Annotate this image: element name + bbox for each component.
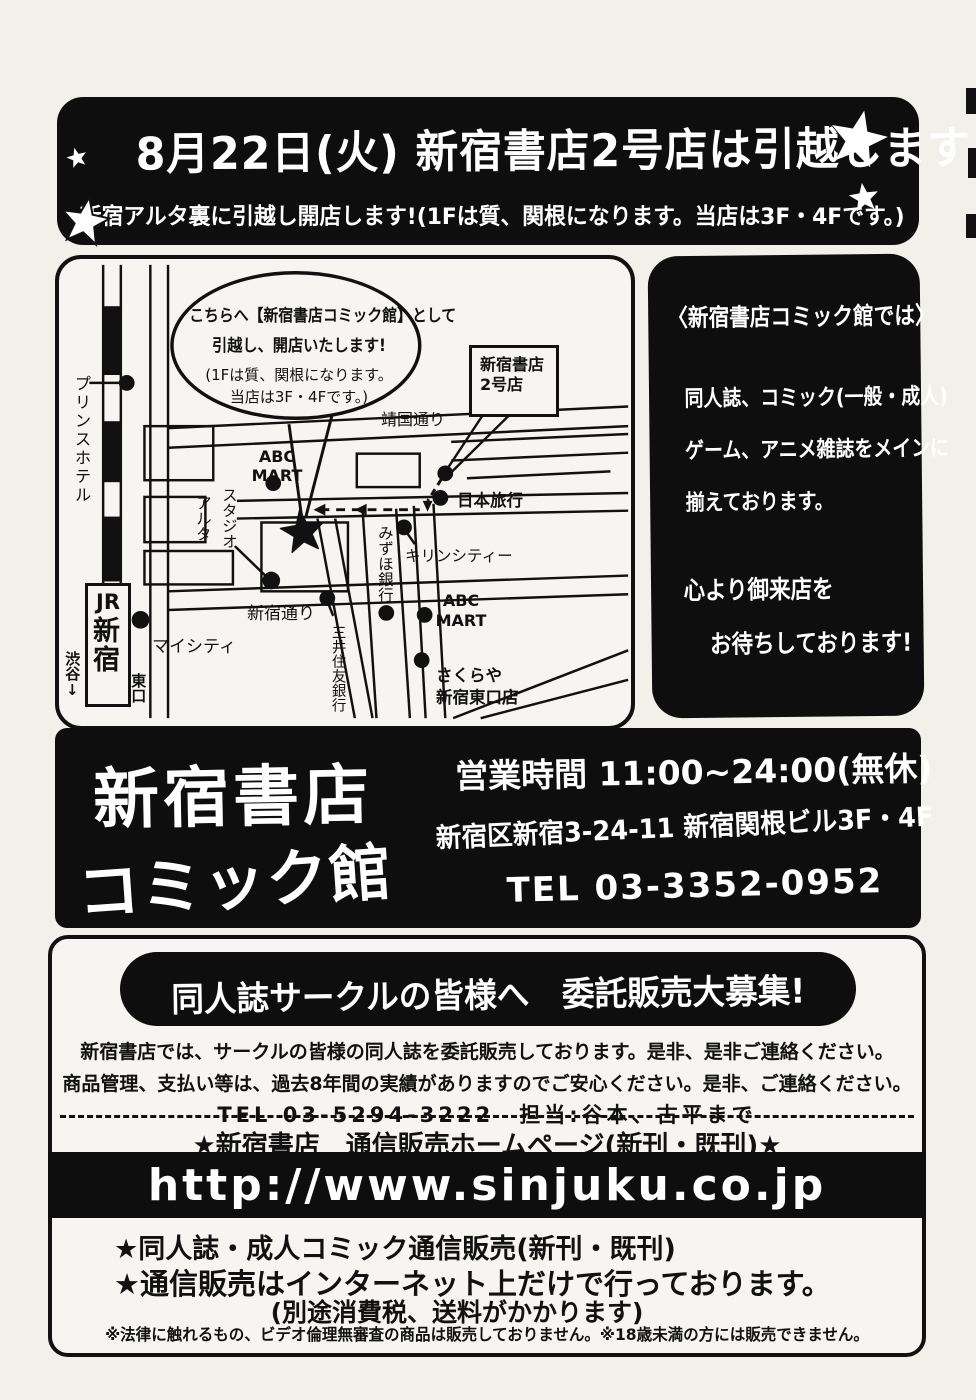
url-text: http://www.sinjuku.co.jp xyxy=(148,1160,826,1211)
balloon-line3: (1Fは質、関根になります。 xyxy=(167,367,431,384)
label-shinjuku-dori: 新宿通り xyxy=(247,605,315,625)
balloon-line1: こちらへ【新宿書店コミック館】として xyxy=(189,307,409,326)
shop2-box: 新宿書店 2号店 xyxy=(469,345,559,417)
label-alta: アルタ xyxy=(193,495,211,542)
label-mizuho-bank: みずほ銀行 xyxy=(375,525,393,603)
store-hours: 営業時間 11:00~24:00(無休) xyxy=(455,742,916,798)
label-sakuraya: さくらや 新宿東口店 xyxy=(436,665,519,709)
shop2-label-2: 2号店 xyxy=(480,376,556,394)
consignment-box: 同人誌サークルの皆様へ 委託販売大募集! 新宿書店では、サークルの皆様の同人誌を… xyxy=(48,935,926,1357)
jr-label: JR xyxy=(88,590,128,614)
label-abc-mart-right: ABC MART xyxy=(435,591,487,631)
jr-shinjuku-box: JR 新宿 xyxy=(85,583,131,707)
scan-mark xyxy=(966,88,976,114)
label-east-exit: 東口 xyxy=(129,673,146,703)
label-studio: スタジオ xyxy=(219,487,237,549)
info-line3: 揃えております。 xyxy=(685,475,949,530)
consignment-banner: 同人誌サークルの皆様へ 委託販売大募集! xyxy=(120,952,856,1026)
shinjuku-station-label: 新宿 xyxy=(88,616,119,674)
info-panel: 〈新宿書店コミック館では〉 同人誌、コミック(一般・成人) ゲーム、アニメ雑誌を… xyxy=(648,254,925,719)
info-panel-title: 〈新宿書店コミック館では〉 xyxy=(667,296,901,333)
dashed-divider xyxy=(60,1115,914,1118)
store-bar: 新宿書店 コミック館 営業時間 11:00~24:00(無休) 新宿区新宿3-2… xyxy=(55,728,921,928)
consignment-para1: 新宿書店では、サークルの皆様の同人誌を委託販売しております。是非、是非ご連絡くだ… xyxy=(52,1037,922,1064)
store-address: 新宿区新宿3-24-11 新宿関根ビル3F・4F xyxy=(435,796,911,856)
banner-subtitle: 新宿アルタ裏に引越し開店します!(1Fは質、関根になります。当店は3F・4Fです… xyxy=(80,199,897,231)
url-bar: http://www.sinjuku.co.jp xyxy=(48,1152,926,1218)
label-abc-mart-left: ABC MART xyxy=(251,447,303,485)
info-line1: 同人誌、コミック(一般・成人) xyxy=(684,371,948,426)
label-nihon-ryoko: 日本旅行 xyxy=(457,492,523,511)
disclaimer: ※法律に触れるもの、ビデオ倫理無審査の商品は販売しておりません。※18歳未満の方… xyxy=(65,1321,909,1345)
ad-page: 8月22日(火) 新宿書店2号店は引越します! 新宿アルタ裏に引越し開店します!… xyxy=(0,0,976,1400)
banner-title: 8月22日(火) 新宿書店2号店は引越します! xyxy=(135,112,840,182)
star-icon xyxy=(824,158,904,238)
label-shibuya: 渋谷↓ xyxy=(63,651,80,699)
shop2-label-1: 新宿書店 xyxy=(480,356,556,374)
scan-mark xyxy=(966,214,976,238)
label-prince-hotel: プリンスホテル xyxy=(71,375,90,505)
info-line5: お待ちしております! xyxy=(710,616,913,672)
consignment-banner-text: 同人誌サークルの皆様へ 委託販売大募集! xyxy=(171,964,806,1022)
store-tel: TEL 03-3352-0952 xyxy=(475,860,916,912)
consignment-para2: 商品管理、支払い等は、過去8年間の実績がありますのでご安心ください。是非、ご連絡… xyxy=(52,1069,922,1096)
label-my-city: マイシティ xyxy=(152,638,236,658)
label-kirin-city: キリンシティー xyxy=(405,548,513,566)
label-smbc: 三井住友銀行 xyxy=(329,625,346,712)
balloon-line2: 引越し、開店いたします! xyxy=(187,337,411,356)
scan-mark xyxy=(968,148,976,178)
balloon-line4: 当店は3F・4Fです。) xyxy=(167,389,431,406)
info-line2: ゲーム、アニメ雑誌をメインに xyxy=(685,423,949,478)
info-line4: 心より御来店を xyxy=(683,562,910,618)
map-box: こちらへ【新宿書店コミック館】として 引越し、開店いたします! (1Fは質、関根… xyxy=(55,255,635,730)
top-banner: 8月22日(火) 新宿書店2号店は引越します! 新宿アルタ裏に引越し開店します!… xyxy=(57,97,919,245)
label-yasukuni-dori: 靖国通り xyxy=(381,411,445,429)
